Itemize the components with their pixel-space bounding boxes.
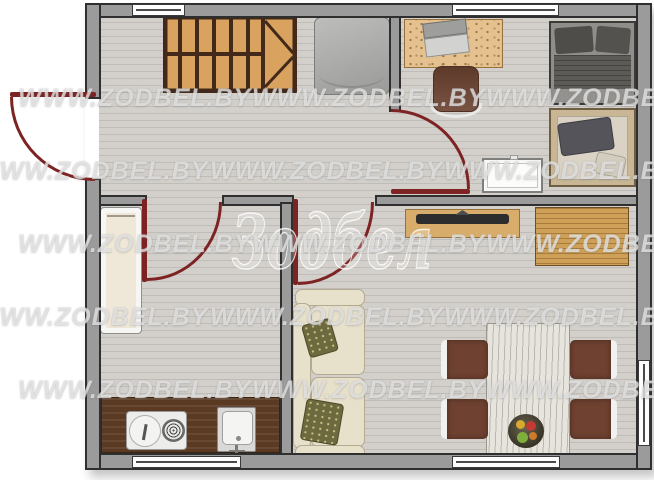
bed-gray-blanket bbox=[554, 55, 631, 89]
stove bbox=[126, 411, 187, 450]
wall-mid-segment-left bbox=[99, 195, 147, 206]
staircase bbox=[163, 15, 297, 93]
window-right-living bbox=[638, 360, 650, 446]
dining-chair-top-left bbox=[441, 340, 488, 379]
dining-chair-bottom-left bbox=[441, 399, 488, 439]
sink-basin bbox=[222, 411, 253, 445]
cabinet-front-curve bbox=[319, 74, 385, 88]
bed-gray-foot bbox=[554, 89, 631, 101]
fruit-orange bbox=[529, 432, 537, 440]
bed-wood-frame bbox=[549, 108, 636, 187]
coil-burner bbox=[162, 419, 185, 442]
front-door-arc bbox=[10, 97, 95, 181]
kitchen-sink bbox=[217, 407, 256, 452]
window-bottom-kitchen bbox=[132, 456, 241, 468]
pot-lid bbox=[125, 411, 164, 450]
fruit-bowl bbox=[508, 414, 544, 448]
tv bbox=[416, 214, 509, 224]
wall-left-upper bbox=[85, 3, 101, 99]
bed-gray-pillow-2 bbox=[595, 26, 631, 55]
wall-mid-segment-right bbox=[375, 195, 638, 206]
fruit-green bbox=[517, 432, 528, 443]
bedroom-door-leaf bbox=[391, 189, 470, 194]
lid-handle bbox=[142, 424, 148, 440]
fruit-yellow bbox=[516, 420, 525, 429]
fruit-red bbox=[526, 421, 536, 431]
laptop bbox=[422, 18, 470, 57]
window-top-hall bbox=[132, 4, 185, 16]
faucet-handles bbox=[229, 450, 245, 452]
kitchen-cream-table bbox=[101, 208, 141, 333]
wardrobe bbox=[535, 207, 629, 266]
dining-chair-bottom-right bbox=[570, 399, 617, 439]
bed-gray-pillow-1 bbox=[554, 26, 594, 55]
bed-gray bbox=[549, 21, 636, 105]
floor-plan: Зодбел WWW.ZODBEL.BYWWW.ZODBEL.BYWWW.ZOD… bbox=[0, 0, 654, 480]
drain bbox=[236, 436, 241, 441]
cream-table-edge-line bbox=[107, 215, 135, 218]
crib bbox=[482, 158, 543, 193]
crib-knob bbox=[510, 155, 518, 160]
wall-kitchen-living bbox=[280, 202, 293, 455]
sofa bbox=[293, 289, 369, 463]
wall-hall-bedroom bbox=[389, 16, 401, 112]
window-bottom-living bbox=[452, 456, 560, 468]
crib-bedding bbox=[487, 163, 538, 188]
gray-cabinet bbox=[314, 17, 390, 95]
wall-left-lower bbox=[85, 178, 101, 470]
window-top-bedroom bbox=[452, 4, 559, 16]
sofa-pillow-2 bbox=[300, 398, 345, 446]
dining-chair-top-right bbox=[570, 340, 617, 379]
